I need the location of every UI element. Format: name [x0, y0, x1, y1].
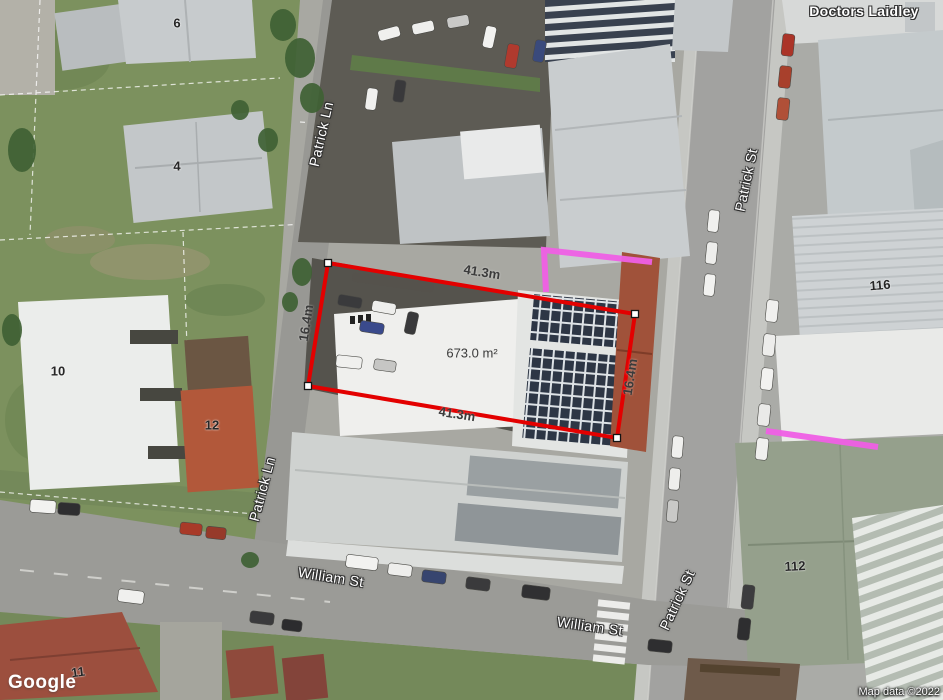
map-canvas[interactable]: Patrick Ln Patrick Ln Patrick St Patrick… — [0, 0, 943, 700]
google-logo[interactable]: Google — [8, 672, 76, 694]
satellite-imagery — [0, 0, 943, 700]
map-attribution: Map data ©2022 — [859, 686, 941, 698]
